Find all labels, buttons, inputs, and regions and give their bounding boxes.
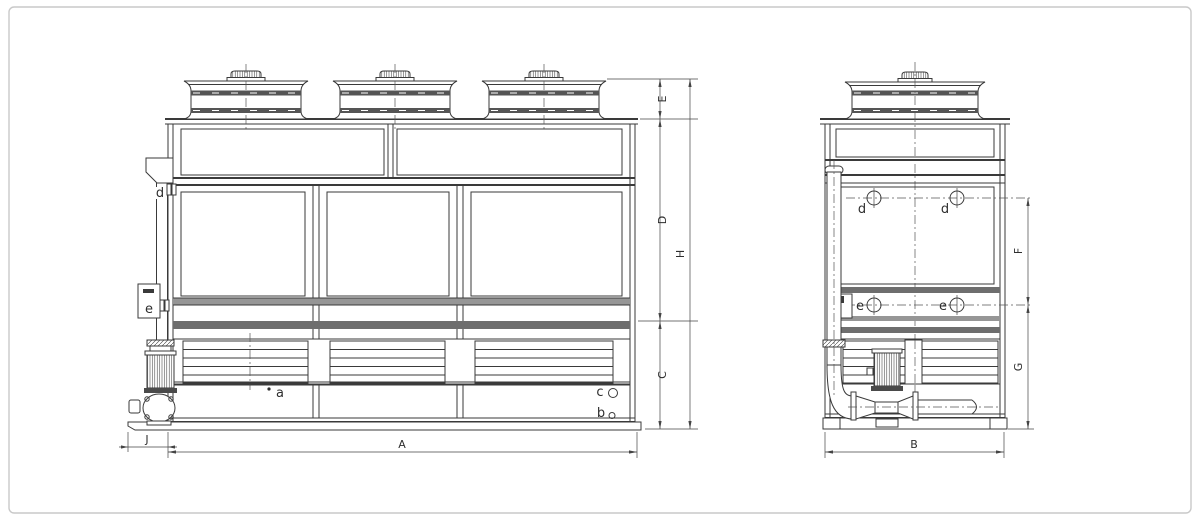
- port-d-label-side-rear: d: [941, 202, 949, 217]
- port-e-label-side-front: e: [856, 299, 864, 314]
- port-d-flange-2: [172, 184, 176, 195]
- dim-E-label: E: [656, 95, 669, 102]
- dim-F-label: F: [1012, 248, 1025, 254]
- port-c-label: c: [596, 385, 603, 400]
- suction-flange: [851, 392, 856, 420]
- side-motor-cap: [872, 349, 902, 353]
- dim-D-label: D: [656, 216, 669, 224]
- port-e-flange-2: [165, 300, 169, 311]
- side-motor-base: [871, 386, 903, 391]
- port-b-label: b: [597, 406, 605, 421]
- base-plinth: [128, 422, 641, 430]
- louver-center-strip: [905, 340, 922, 384]
- pump-pedestal: [147, 421, 171, 425]
- dim-C-label: C: [656, 371, 669, 379]
- dim-J-label: J: [144, 433, 148, 446]
- dim-G-label: G: [1012, 363, 1025, 372]
- port-a-marker: [267, 387, 270, 390]
- dim-B-label: B: [910, 438, 918, 451]
- port-e-label-side-rear: e: [939, 299, 947, 314]
- pump-casing: [143, 394, 175, 422]
- discharge-flange: [913, 392, 918, 420]
- motor-cap: [145, 351, 176, 355]
- valve-indicator: [143, 289, 154, 293]
- drawing-canvas: a c b d e: [0, 0, 1200, 520]
- port-d-label-front: d: [156, 186, 164, 201]
- pump-suction-nub: [129, 400, 140, 413]
- motor-junction-box: [867, 368, 873, 375]
- port-e-label-front: e: [145, 302, 153, 317]
- dim-H-label: H: [674, 250, 687, 258]
- port-a-label: a: [276, 386, 284, 401]
- port-d-flange: [167, 184, 171, 195]
- cooling-tower-drawing: a c b d e: [0, 0, 1200, 520]
- motor-base: [144, 388, 177, 393]
- port-e-flange: [160, 300, 164, 311]
- dim-A-label: A: [398, 438, 406, 451]
- port-d-label-side-front: d: [858, 202, 866, 217]
- side-pump-pedestal: [876, 419, 898, 427]
